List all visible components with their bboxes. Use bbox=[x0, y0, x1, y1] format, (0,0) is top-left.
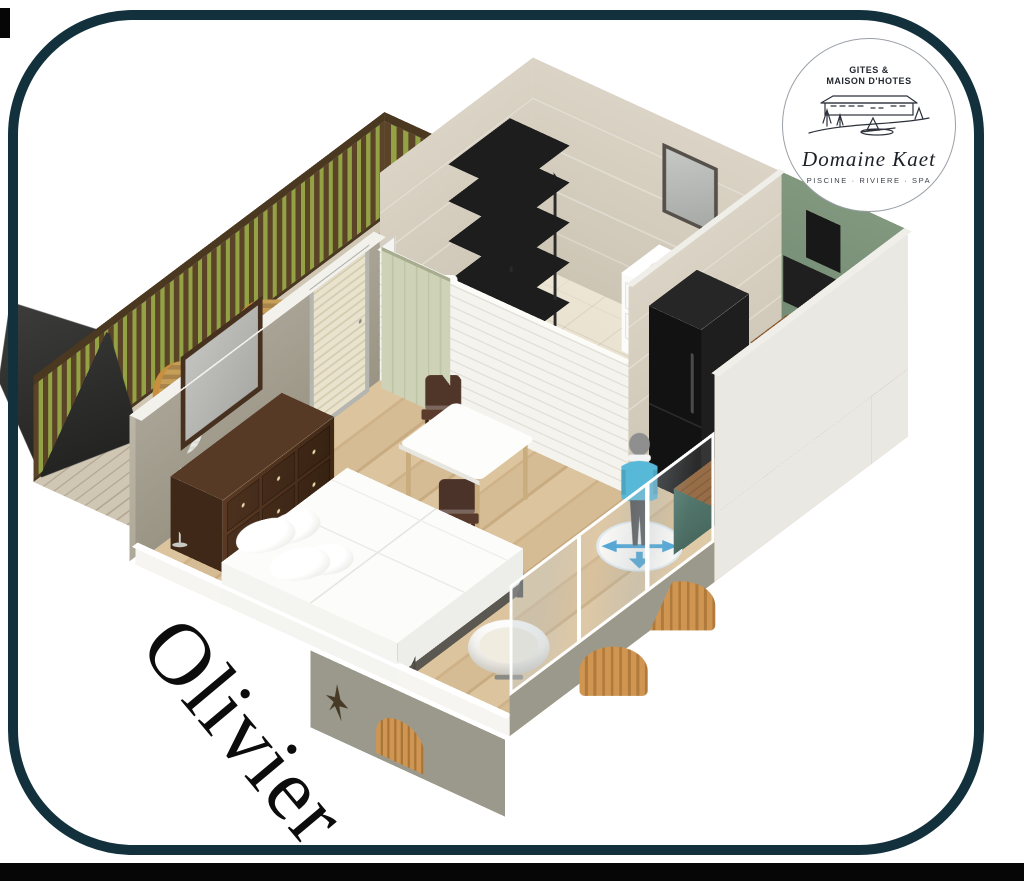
corner-tab bbox=[0, 8, 10, 38]
lamp-base bbox=[172, 542, 187, 547]
outdoor-chair-glimpse bbox=[376, 710, 424, 775]
logo-line1: GITES & bbox=[849, 65, 889, 76]
door-knob bbox=[359, 318, 362, 324]
logo-tagline: PISCINE · RIVIERE · SPA bbox=[807, 176, 932, 185]
adirondack-chair-2 bbox=[579, 647, 647, 696]
bottom-bar bbox=[0, 863, 1024, 881]
fridge-handle bbox=[691, 353, 694, 414]
brand-logo: GITES & MAISON D'HOTES Domaine Kaet PISC… bbox=[782, 38, 956, 212]
logo-line2: MAISON D'HOTES bbox=[826, 76, 911, 87]
floorplan-canvas: Olivier GITES & MAISON D'HOTES Domaine K… bbox=[0, 0, 1024, 881]
chair-back bbox=[439, 479, 475, 513]
logo-name: Domaine Kaet bbox=[802, 147, 936, 172]
logo-art-icon bbox=[803, 87, 935, 145]
plant-silhouette bbox=[326, 679, 348, 725]
